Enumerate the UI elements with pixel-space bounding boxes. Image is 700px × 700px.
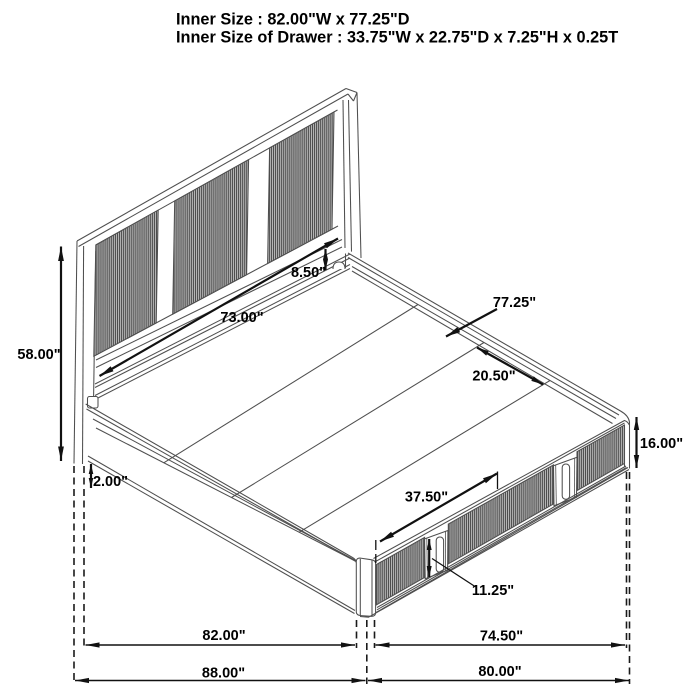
- svg-text:73.00": 73.00": [220, 310, 263, 326]
- svg-text:11.25": 11.25": [472, 583, 514, 599]
- svg-text:77.25": 77.25": [493, 295, 536, 311]
- svg-text:80.00": 80.00": [478, 664, 521, 680]
- svg-text:Inner Size : 82.00"W x 77.25"D: Inner Size : 82.00"W x 77.25"D: [176, 11, 410, 29]
- svg-text:37.50": 37.50": [405, 490, 448, 506]
- svg-text:16.00": 16.00": [640, 436, 683, 452]
- svg-text:88.00": 88.00": [202, 666, 245, 682]
- svg-text:2.00": 2.00": [93, 474, 128, 490]
- svg-text:82.00": 82.00": [202, 628, 245, 644]
- svg-text:20.50": 20.50": [472, 369, 515, 385]
- svg-text:74.50": 74.50": [480, 629, 523, 645]
- svg-text:58.00": 58.00": [17, 347, 60, 363]
- svg-text:Inner Size of Drawer : 33.75"W: Inner Size of Drawer : 33.75"W x 22.75"D…: [176, 29, 618, 47]
- svg-text:8.50": 8.50": [291, 265, 326, 281]
